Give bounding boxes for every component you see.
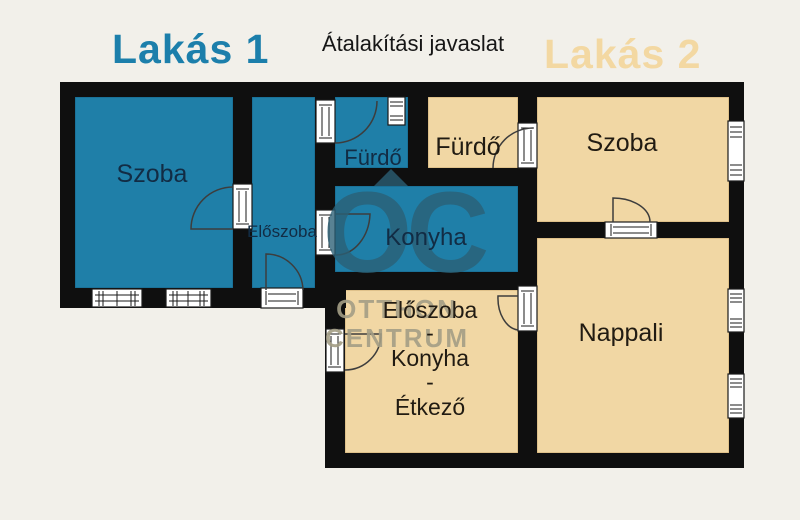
label-apt1-konyha: Konyha: [385, 224, 467, 251]
wall-between-bathrooms: [408, 97, 428, 168]
label-apt2-middle-line3: Étkező: [395, 394, 465, 420]
room-apt2-szoba: [537, 97, 729, 222]
window: [728, 121, 744, 181]
window: [166, 289, 211, 307]
floor-plan-svg: OC OTTHON CENTRUM Szoba Előszoba Fürdő K…: [0, 0, 800, 520]
label-apt2-nappali: Nappali: [579, 319, 664, 347]
window: [728, 289, 744, 332]
label-apt2-middle-sep1: -: [426, 320, 434, 346]
label-apt1-furdo: Fürdő: [344, 145, 401, 170]
window: [92, 289, 142, 307]
label-apt2-middle-sep2: -: [426, 369, 434, 395]
window: [728, 374, 744, 418]
room-apt1-eloszoba: [252, 97, 315, 288]
wall-top: [60, 82, 744, 97]
label-apt2-szoba: Szoba: [587, 129, 658, 157]
label-apt2-middle-line2: Konyha: [391, 345, 469, 371]
wall-left: [60, 82, 75, 308]
wall-bottom: [325, 453, 744, 468]
label-apt1-eloszoba: Előszoba: [247, 222, 317, 241]
room-apt1-szoba: [75, 97, 233, 288]
label-apt2-furdo: Fürdő: [435, 133, 500, 161]
floor-plan-page: Lakás 1 Átalakítási javaslat Lakás 2: [0, 0, 800, 520]
window-furdo-small: [388, 97, 405, 125]
label-apt1-szoba: Szoba: [117, 160, 188, 188]
